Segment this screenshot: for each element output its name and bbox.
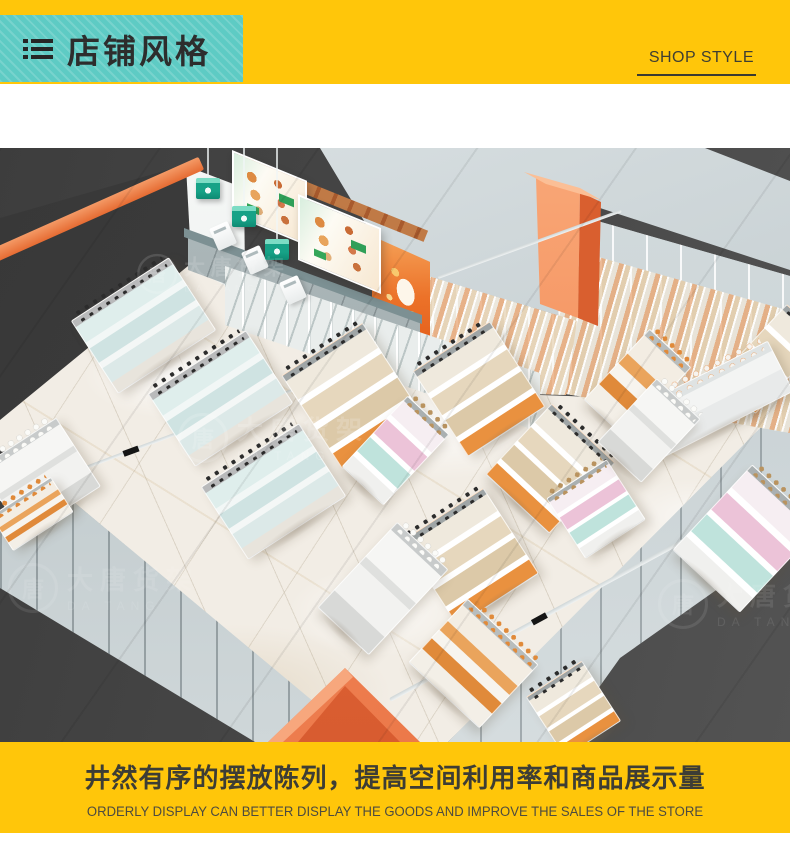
list-icon: [23, 39, 53, 59]
pendant-cube-lamp: [265, 239, 289, 260]
caption-cn: 井然有序的摆放陈列，提高空间利用率和商品展示量: [0, 758, 790, 795]
caption-band: 井然有序的摆放陈列，提高空间利用率和商品展示量 ORDERLY DISPLAY …: [0, 742, 790, 833]
header-subtitle-en: SHOP STYLE: [637, 49, 756, 76]
header-band: 店铺风格 SHOP STYLE: [0, 0, 790, 84]
lamp-cord: [243, 148, 245, 208]
lamp-cord: [276, 148, 278, 241]
spacer: [0, 84, 790, 148]
pendant-cube-lamp: [196, 178, 220, 199]
title-box: 店铺风格: [0, 15, 243, 82]
store-3d-render: 唐 大唐货架 DA TANG 唐 大唐货架 DA TANG 唐 大唐货架 DA …: [0, 148, 790, 742]
lamp-cord: [207, 148, 209, 180]
caption-en: ORDERLY DISPLAY CAN BETTER DISPLAY THE G…: [12, 804, 778, 819]
bottom-spacer: [0, 833, 790, 858]
pendant-cube-lamp: [232, 206, 256, 227]
page-title: 店铺风格: [67, 25, 211, 73]
page: 店铺风格 SHOP STYLE: [0, 0, 790, 858]
